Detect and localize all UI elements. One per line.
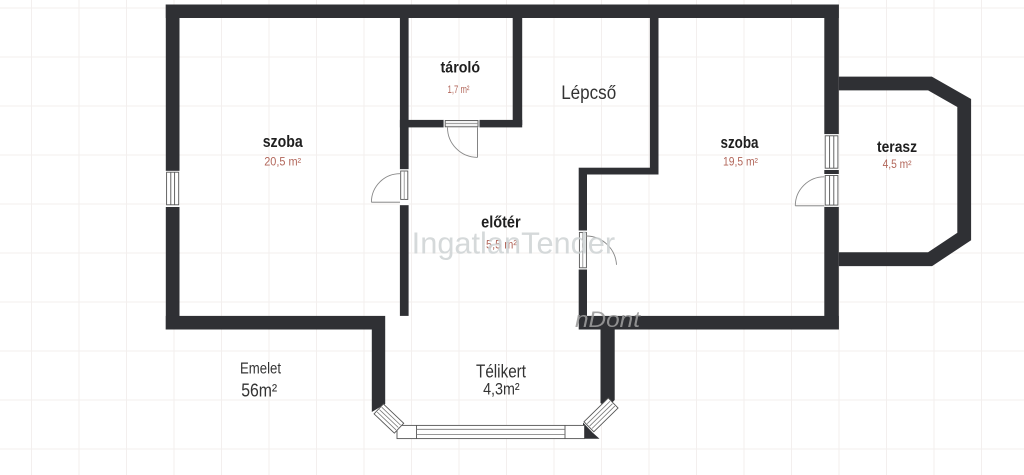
svg-text:IngatlanTender: IngatlanTender xyxy=(412,226,615,260)
svg-text:4,3m²: 4,3m² xyxy=(483,380,520,399)
svg-text:56m²: 56m² xyxy=(241,380,277,400)
svg-text:Lépcső: Lépcső xyxy=(561,83,616,104)
svg-text:1,7 m²: 1,7 m² xyxy=(448,84,470,96)
svg-text:szoba: szoba xyxy=(263,132,303,151)
svg-text:terasz: terasz xyxy=(877,139,917,156)
svg-text:Emelet: Emelet xyxy=(240,361,282,378)
svg-text:19,5 m²: 19,5 m² xyxy=(723,156,758,168)
svg-text:20,5 m²: 20,5 m² xyxy=(264,157,301,169)
svg-text:nDont: nDont xyxy=(575,307,642,332)
svg-text:tároló: tároló xyxy=(441,60,481,77)
svg-text:szoba: szoba xyxy=(721,133,759,152)
svg-text:4,5 m²: 4,5 m² xyxy=(883,159,912,171)
